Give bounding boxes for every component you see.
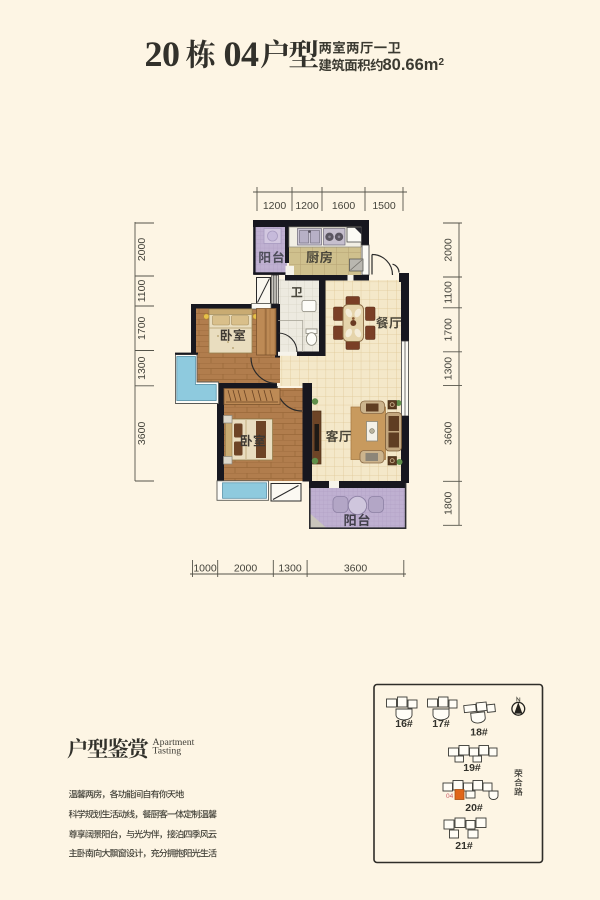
svg-text:1500: 1500: [372, 200, 396, 212]
svg-text:04: 04: [224, 34, 260, 74]
svg-text:1300: 1300: [136, 356, 148, 380]
svg-text:21#: 21#: [455, 840, 473, 852]
svg-text:1700: 1700: [136, 316, 148, 340]
svg-text:18#: 18#: [470, 727, 488, 739]
svg-text:80.66m2: 80.66m2: [383, 56, 445, 74]
svg-text:3600: 3600: [136, 422, 148, 446]
svg-text:1300: 1300: [443, 357, 455, 381]
svg-text:3600: 3600: [344, 563, 368, 575]
svg-text:1700: 1700: [443, 318, 455, 342]
svg-text:1600: 1600: [332, 200, 356, 212]
svg-text:16#: 16#: [395, 718, 413, 730]
svg-text:1100: 1100: [136, 280, 148, 303]
svg-text:04: 04: [446, 793, 454, 800]
svg-text:19#: 19#: [463, 762, 481, 774]
svg-text:2000: 2000: [136, 238, 148, 262]
svg-text:20#: 20#: [465, 802, 483, 814]
svg-text:2000: 2000: [443, 238, 455, 262]
svg-text:1300: 1300: [278, 563, 302, 575]
svg-text:3600: 3600: [443, 421, 455, 445]
svg-text:1800: 1800: [443, 491, 455, 515]
svg-text:2000: 2000: [234, 563, 258, 575]
svg-text:20: 20: [145, 34, 180, 74]
svg-text:Tasting: Tasting: [153, 746, 182, 757]
svg-text:1100: 1100: [443, 281, 455, 304]
svg-text:17#: 17#: [432, 718, 450, 730]
svg-text:1200: 1200: [295, 200, 319, 212]
svg-text:1200: 1200: [263, 200, 287, 212]
svg-text:1000: 1000: [193, 563, 217, 575]
